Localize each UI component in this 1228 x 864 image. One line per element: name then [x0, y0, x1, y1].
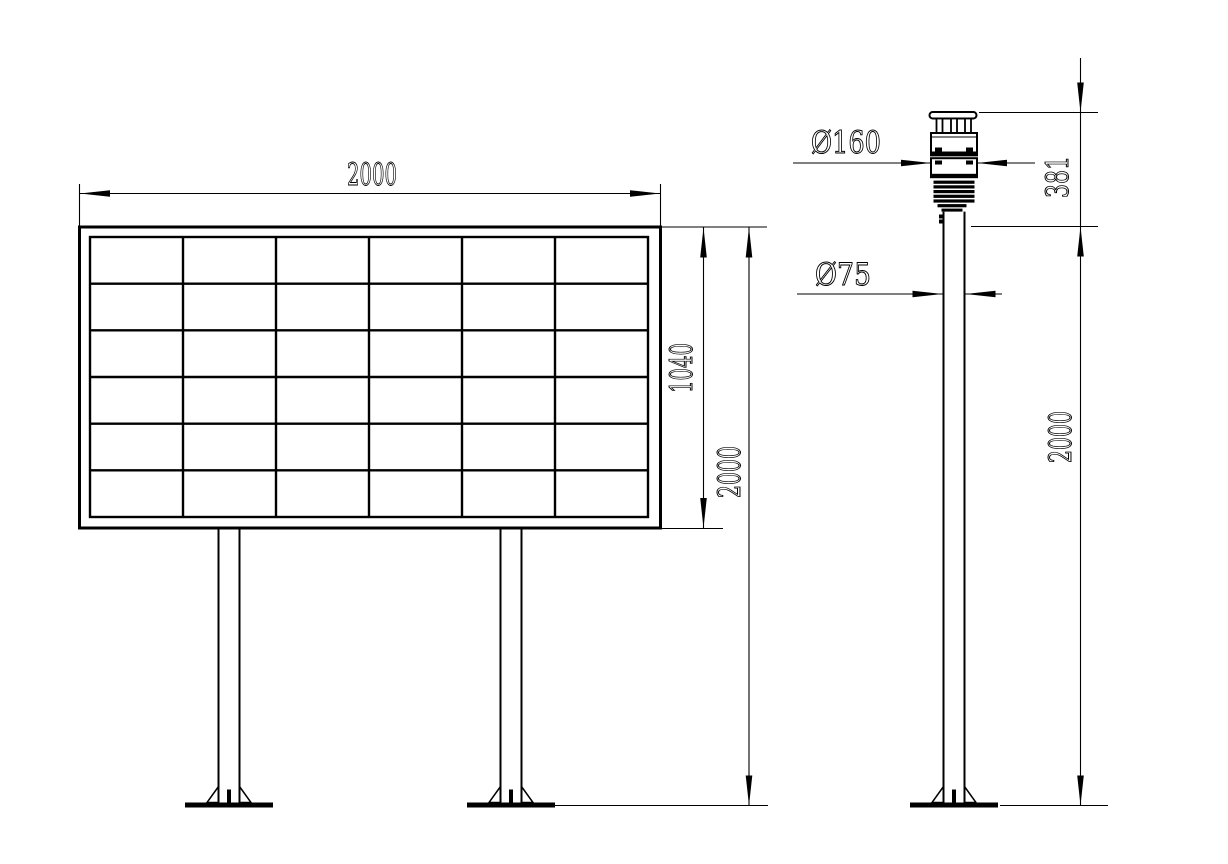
arrow-up-icon	[1077, 227, 1084, 257]
arrow-down-icon	[1077, 83, 1084, 113]
sensor-post	[937, 119, 943, 134]
gusset	[932, 787, 944, 803]
pole-base-plate	[910, 803, 998, 808]
dim-panel-height-label: 1040	[664, 343, 700, 393]
arrow-left-icon	[966, 291, 996, 298]
sensor-louvers	[934, 181, 975, 212]
arrow-down-icon	[700, 498, 707, 528]
dim-pole-diameter: Ø75	[797, 257, 1002, 297]
left-leg	[185, 528, 273, 808]
arrow-up-icon	[700, 228, 707, 258]
dim-sensor-diameter: Ø160	[793, 125, 1035, 166]
dim-sensor-diameter-label: Ø160	[811, 125, 881, 161]
gusset	[207, 787, 219, 803]
panel-grid	[90, 237, 648, 517]
louver-fin	[934, 190, 975, 193]
arrow-right-icon	[913, 291, 943, 298]
sensor-post	[951, 119, 957, 134]
gusset	[522, 787, 534, 803]
pole	[910, 212, 998, 808]
sensor-post	[965, 119, 971, 134]
dim-front-total-height: 2000	[712, 228, 752, 806]
dim-pole-diameter-label: Ø75	[815, 257, 871, 293]
arrow-right-icon	[901, 160, 931, 167]
right-leg	[467, 528, 555, 808]
anchor-bolt	[509, 790, 513, 804]
dim-pole-height-label: 2000	[1043, 411, 1079, 463]
louver-fin	[934, 185, 975, 188]
sensor-latch	[966, 148, 973, 152]
dim-panel-width: 2000	[80, 157, 661, 227]
side-view: Ø160 Ø75 381 2000	[793, 58, 1108, 808]
sensor-latch	[966, 161, 973, 165]
gusset	[489, 787, 501, 803]
louver-fin	[934, 195, 975, 198]
dim-sensor-height-label: 381	[1040, 156, 1076, 198]
sensor-cap	[930, 112, 977, 119]
left-base-plate	[185, 803, 273, 808]
arrow-down-icon	[1077, 776, 1084, 806]
arrow-left-icon	[977, 160, 1007, 167]
sensor-head	[930, 112, 979, 224]
drawing-page: 2000 1040 2000	[0, 0, 1228, 864]
gusset	[240, 787, 252, 803]
dim-front-total-height-label: 2000	[712, 446, 748, 498]
arrow-right-icon	[630, 190, 660, 197]
louver-fin	[934, 181, 975, 184]
louver-fin	[938, 204, 967, 207]
sensor-bottom-band	[931, 174, 977, 177]
louver-fin	[942, 209, 963, 212]
anchor-bolt	[227, 790, 231, 804]
arrow-left-icon	[80, 190, 110, 197]
gusset	[965, 787, 977, 803]
technical-drawing-canvas: 2000 1040 2000	[0, 0, 1228, 864]
sensor-latch	[935, 161, 942, 165]
front-view: 2000 1040 2000	[80, 157, 769, 808]
right-base-plate	[467, 803, 555, 808]
arrow-up-icon	[746, 228, 753, 258]
arrow-down-icon	[746, 776, 753, 806]
dim-sensor-and-pole-height: 381 2000	[971, 58, 1098, 806]
sensor-posts	[937, 119, 972, 134]
dim-panel-width-label: 2000	[347, 157, 397, 193]
louver-fin	[934, 199, 975, 202]
sensor-latch	[935, 148, 942, 152]
anchor-bolt	[952, 790, 956, 804]
